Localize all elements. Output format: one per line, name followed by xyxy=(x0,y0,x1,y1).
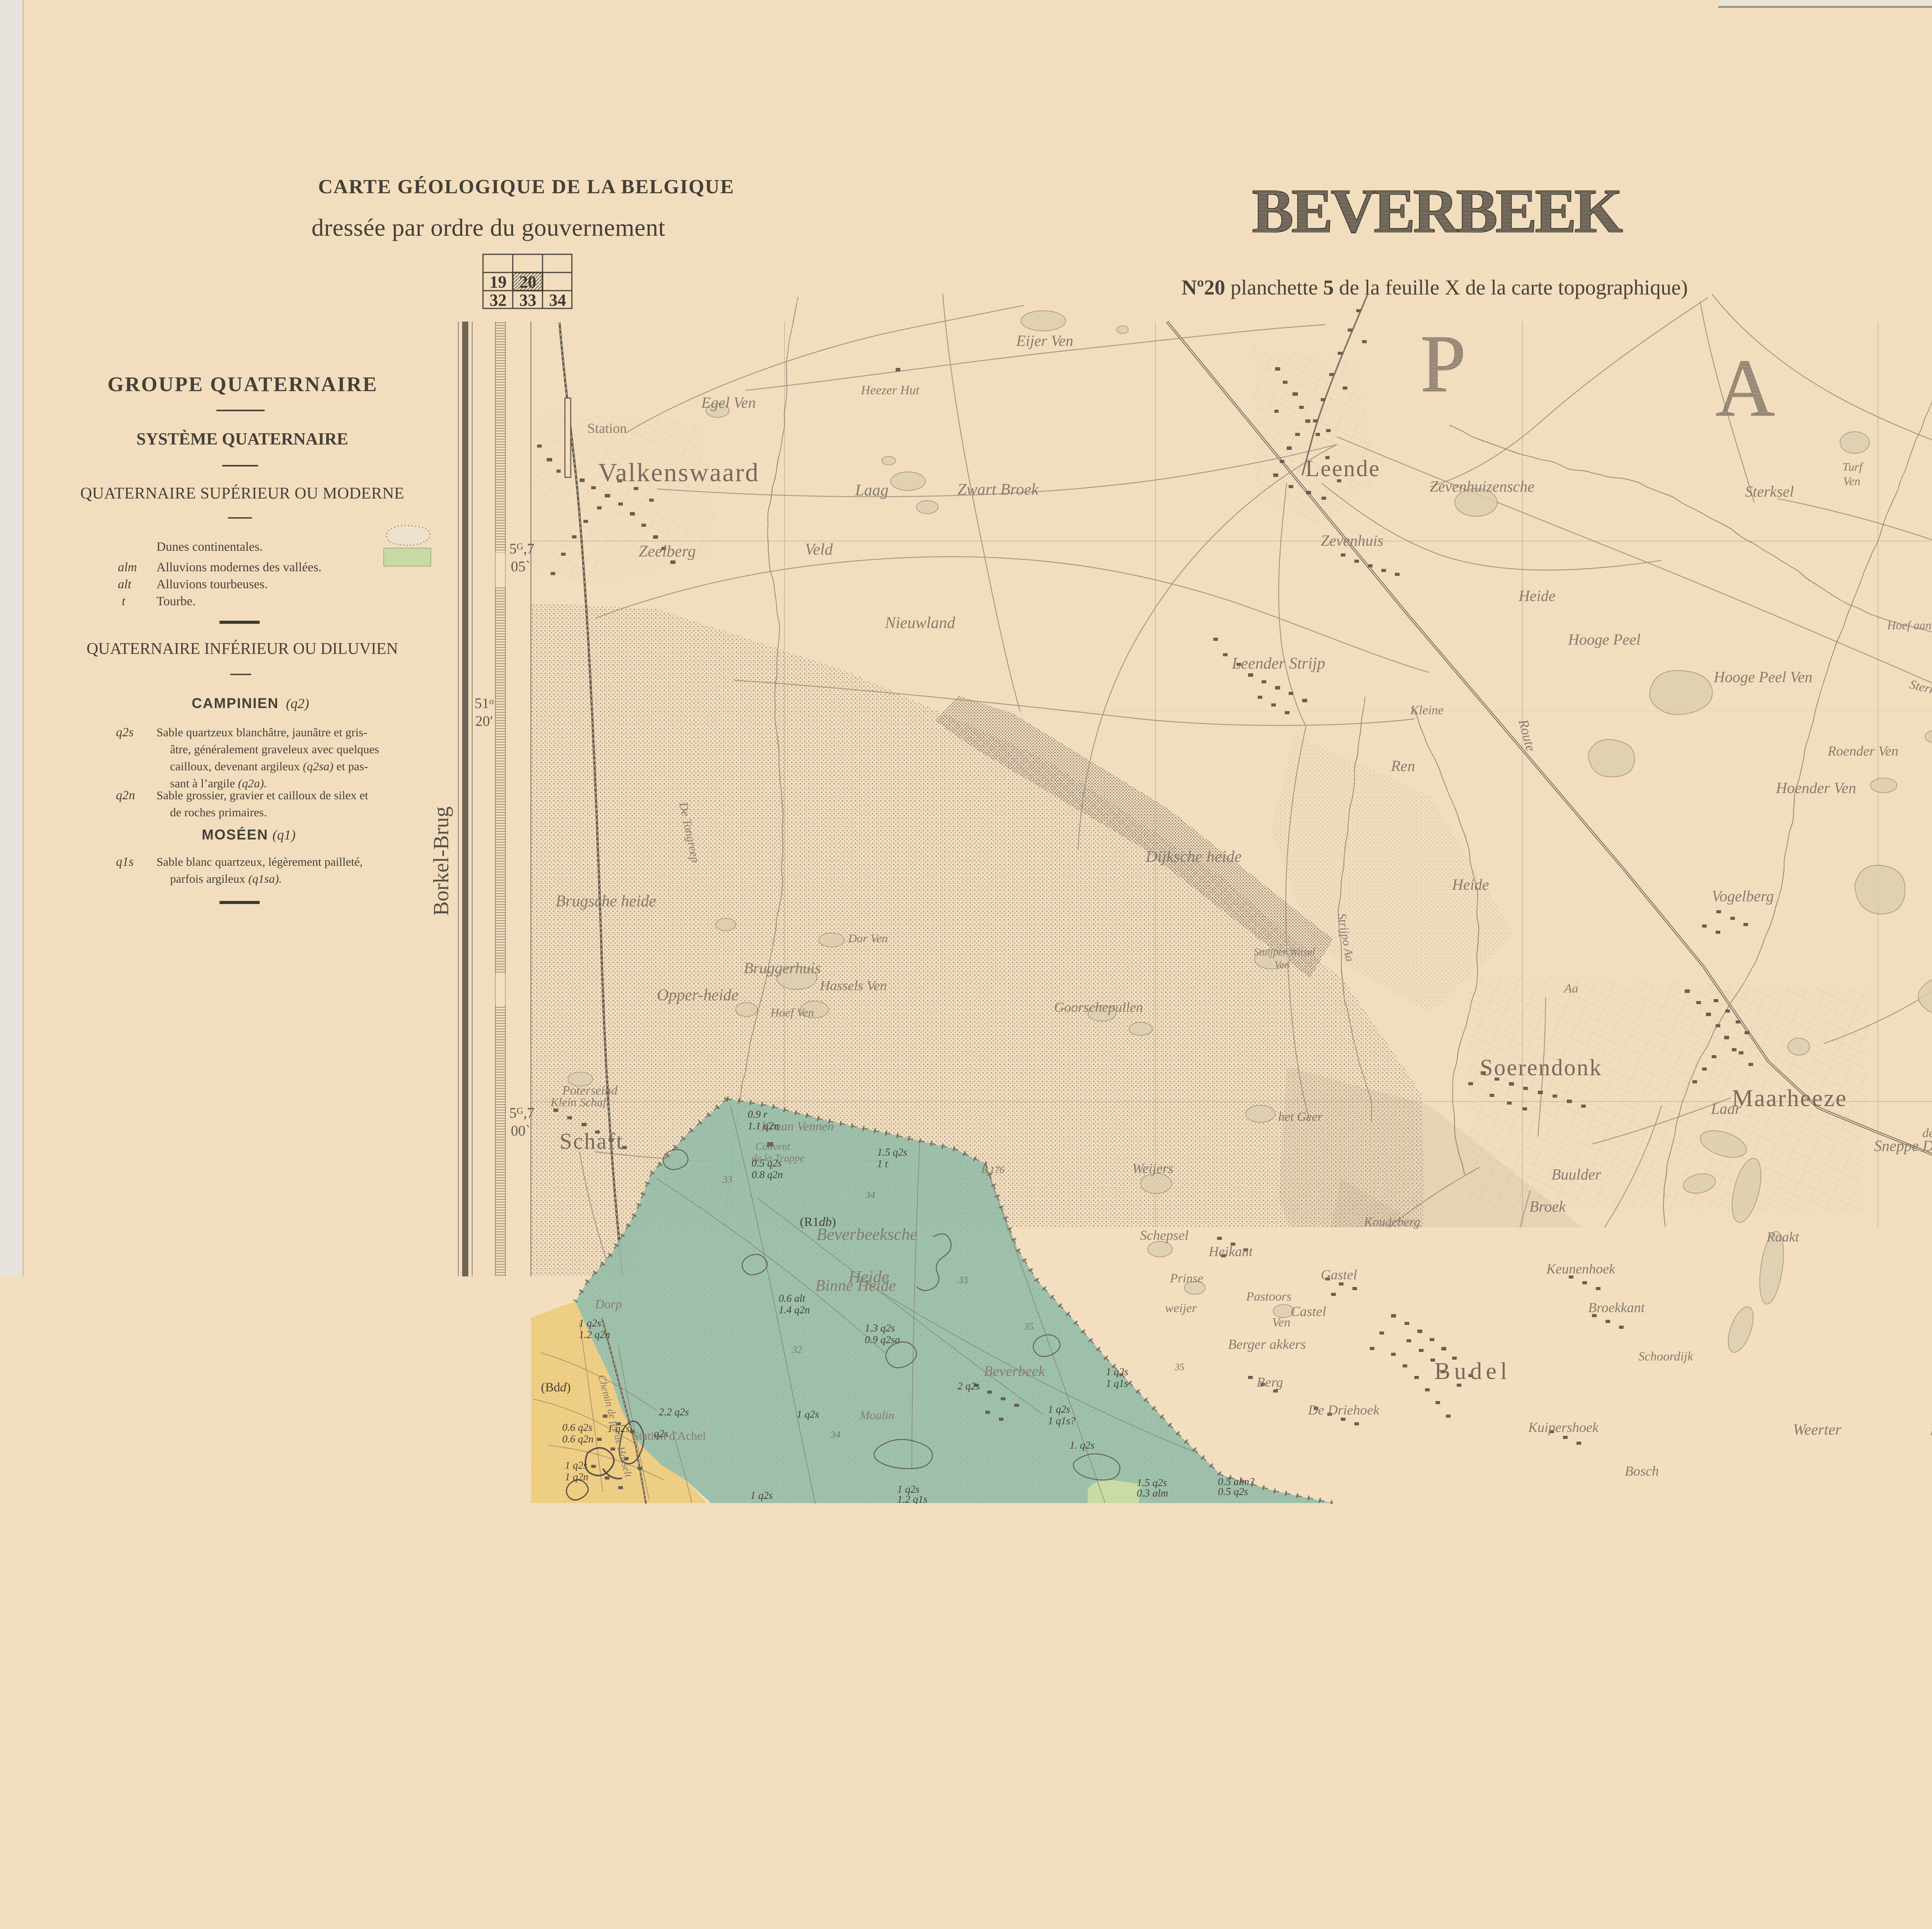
svg-text:Hoef aan de Pan: Hoef aan de Pan xyxy=(1887,618,1932,632)
svg-text:(R1db): (R1db) xyxy=(800,1215,836,1229)
svg-text:QUATERNAIRE INFÉRIEUR OU DILUV: QUATERNAIRE INFÉRIEUR OU DILUVIEN xyxy=(87,640,398,658)
svg-text:Laar: Laar xyxy=(1711,1100,1741,1117)
svg-text:0: 0 xyxy=(1157,1679,1163,1692)
svg-text:Heide: Heide xyxy=(1452,876,1489,893)
svg-text:32: 32 xyxy=(490,291,507,310)
svg-text:Schepsel: Schepsel xyxy=(1140,1228,1189,1243)
svg-text:Heide: Heide xyxy=(1518,587,1556,604)
svg-text:0.9 r: 0.9 r xyxy=(748,1108,768,1120)
svg-text:2.2 q2s: 2.2 q2s xyxy=(659,1406,689,1418)
svg-text:Pastoors: Pastoors xyxy=(1246,1290,1291,1304)
svg-text:Goorschepullen: Goorschepullen xyxy=(1054,999,1143,1015)
svg-text:Opper-heide: Opper-heide xyxy=(657,986,738,1004)
svg-text:Leende: Leende xyxy=(1305,456,1381,481)
svg-text:1000: 1000 xyxy=(1310,1679,1334,1692)
svg-text:1.1 q2n: 1.1 q2n xyxy=(748,1120,779,1132)
svg-text:sauf quand elles sont indiquée: sauf quand elles sont indiquées entre pa… xyxy=(381,1658,746,1674)
svg-text:âtre, généralement graveleux a: âtre, généralement graveleux avec quelqu… xyxy=(170,742,379,756)
svg-text:MOSÉEN: MOSÉEN xyxy=(202,827,268,843)
svg-text:q2s: q2s xyxy=(116,725,134,739)
svg-text:0.3 alm: 0.3 alm xyxy=(1137,1487,1168,1499)
svg-text:Hoef Ven: Hoef Ven xyxy=(770,1006,814,1019)
svg-text:Hassels Ven: Hassels Ven xyxy=(820,978,887,993)
svg-text:00`: 00` xyxy=(511,1123,531,1139)
svg-text:0.5 q2s: 0.5 q2s xyxy=(1218,1486,1248,1497)
svg-text:32: 32 xyxy=(792,1345,802,1355)
svg-text:Station d'Achel: Station d'Achel xyxy=(632,1429,706,1442)
svg-text:1 q2s: 1 q2s xyxy=(1106,1366,1128,1377)
svg-text:1 q2n: 1 q2n xyxy=(565,1471,588,1483)
svg-text:Hooge Peel Ven: Hooge Peel Ven xyxy=(1713,668,1812,686)
svg-text:Berger akkers: Berger akkers xyxy=(1228,1337,1306,1352)
svg-text:Prinse: Prinse xyxy=(1170,1272,1203,1285)
svg-text:15′: 15′ xyxy=(1796,1546,1814,1562)
svg-text:sant à l’argile (q2a).: sant à l’argile (q2a). xyxy=(170,776,267,790)
svg-text:1.2 q1s: 1.2 q1s xyxy=(897,1493,927,1505)
svg-text:St.6-6-98.: St.6-6-98. xyxy=(533,1545,571,1555)
svg-text:BEVERBEEK: BEVERBEEK xyxy=(1252,177,1622,246)
svg-text:0.6 alt: 0.6 alt xyxy=(779,1292,806,1304)
svg-text:Moulin: Moulin xyxy=(859,1408,895,1422)
svg-text:Sable blanc quartzeux, légèrem: Sable blanc quartzeux, légèrement paille… xyxy=(156,855,363,868)
svg-text:10′: 10′ xyxy=(1134,1546,1152,1562)
svg-text:de roches primaires.: de roches primaires. xyxy=(170,805,267,819)
svg-text:56G,9658”,22.: 56G,9658”,22. xyxy=(505,1512,519,1570)
svg-text:CARTE GÉOLOGIQUE DE LA BELGIQU: CARTE GÉOLOGIQUE DE LA BELGIQUE xyxy=(318,175,734,198)
svg-text:35: 35 xyxy=(1174,1362,1184,1372)
svg-text:1. q2s: 1. q2s xyxy=(1070,1439,1095,1451)
svg-text:Lat.: Lat. xyxy=(471,1551,487,1573)
svg-text:Nº20 planchette 5 de la feui: Nº20 planchette 5 de la feuille X de la … xyxy=(1182,276,1688,299)
svg-text:1.3 q2s: 1.3 q2s xyxy=(865,1322,895,1334)
svg-text:1.4 q2n: 1.4 q2n xyxy=(779,1304,810,1316)
svg-text:1 q2s: 1 q2s xyxy=(797,1408,819,1420)
svg-text:Weijers: Weijers xyxy=(1132,1161,1173,1176)
svg-text:Soerendonk: Soerendonk xyxy=(1480,1055,1602,1080)
svg-text:QUATERNAIRE SUPÉRIEUR OU MODER: QUATERNAIRE SUPÉRIEUR OU MODERNE xyxy=(80,484,405,502)
svg-text:Turf: Turf xyxy=(1842,460,1864,473)
svg-text:Convent: Convent xyxy=(755,1141,791,1152)
svg-text:Dor Ven: Dor Ven xyxy=(848,931,888,945)
svg-text:cailloux, devenant argileux (q: cailloux, devenant argileux (q2sa) et pa… xyxy=(170,759,368,773)
svg-text:Bosch: Bosch xyxy=(1625,1463,1659,1479)
svg-text:20′: 20′ xyxy=(475,713,493,729)
svg-text:Sterksel: Sterksel xyxy=(1745,483,1794,500)
svg-text:Tourbe.: Tourbe. xyxy=(156,594,196,608)
svg-text:Gastel: Gastel xyxy=(1321,1267,1357,1282)
svg-text:Aa: Aa xyxy=(1563,982,1578,996)
svg-text:35: 35 xyxy=(1024,1321,1034,1332)
svg-text:GROUPE QUATERNAIRE: GROUPE QUATERNAIRE xyxy=(107,373,378,396)
svg-text:de: de xyxy=(1922,1126,1932,1140)
svg-text:Dunes continentales.: Dunes continentales. xyxy=(156,540,263,554)
svg-text:alm: alm xyxy=(118,560,137,574)
svg-text:97240,m N.: 97240,m N. xyxy=(538,1510,603,1527)
svg-text:mètres .: mètres . xyxy=(1755,1679,1793,1692)
svg-text:Zevenhuizensche: Zevenhuizensche xyxy=(1430,478,1534,495)
svg-text:Castel: Castel xyxy=(1291,1304,1326,1319)
svg-text:De Driehoek: De Driehoek xyxy=(1308,1402,1380,1418)
svg-text:20: 20 xyxy=(519,272,536,291)
svg-text:Veld: Veld xyxy=(805,541,833,558)
svg-text:q2n: q2n xyxy=(116,788,135,802)
svg-text:34: 34 xyxy=(830,1430,840,1440)
svg-text:Hamont: Hamont xyxy=(901,1576,993,1604)
svg-text:r: r xyxy=(817,1687,823,1705)
svg-text:33: 33 xyxy=(958,1275,968,1285)
svg-text:Zevenhuis: Zevenhuis xyxy=(1321,532,1383,549)
svg-text:2 q2s: 2 q2s xyxy=(957,1380,980,1392)
svg-text:CAMPINIEN: CAMPINIEN xyxy=(192,695,279,711)
svg-text:Dorp: Dorp xyxy=(595,1297,622,1311)
svg-text:alt: alt xyxy=(118,577,132,591)
svg-text:Leender Strijp: Leender Strijp xyxy=(1231,655,1325,673)
svg-text:40 000: 40 000 xyxy=(1509,1631,1559,1647)
svg-text:34: 34 xyxy=(865,1190,875,1200)
svg-text:Alluvions tourbeuses.: Alluvions tourbeuses. xyxy=(156,577,268,591)
svg-text:1 q1s: 1 q1s xyxy=(1106,1377,1128,1389)
svg-text:Brugsche heide: Brugsche heide xyxy=(556,892,656,910)
svg-text:Ven: Ven xyxy=(1843,474,1861,488)
svg-text:Alluvions modernes des vallées: Alluvions modernes des vallées. xyxy=(156,560,321,574)
svg-text:Laag: Laag xyxy=(855,482,888,499)
svg-text:): ) xyxy=(1566,1620,1573,1644)
svg-text:Roender Ven: Roender Ven xyxy=(1827,743,1898,759)
svg-text:33: 33 xyxy=(519,291,536,310)
svg-text:Hooge Peel: Hooge Peel xyxy=(1568,631,1641,648)
svg-text:Beverbeek: Beverbeek xyxy=(984,1363,1045,1379)
svg-text:Broek: Broek xyxy=(1529,1198,1566,1215)
svg-text:1 q2s: 1 q2s xyxy=(579,1317,601,1329)
svg-text:0.8 q2n: 0.8 q2n xyxy=(752,1169,783,1180)
svg-text:25`: 25` xyxy=(825,1512,845,1528)
svg-text:Heide: Heide xyxy=(848,1267,889,1286)
svg-text:1 q2s: 1 q2s xyxy=(607,1423,630,1434)
svg-text:Valkenswaard: Valkenswaard xyxy=(598,458,759,487)
svg-text:Échelle métrique (: Échelle métrique ( xyxy=(1348,1620,1508,1644)
svg-text:Nieuwland: Nieuwland xyxy=(884,614,956,632)
svg-text:Kuipershoek: Kuipershoek xyxy=(1528,1420,1599,1435)
svg-text:SYSTÈME QUATERNAIRE: SYSTÈME QUATERNAIRE xyxy=(136,429,348,448)
svg-text:05`: 05` xyxy=(511,558,531,575)
svg-text:Berg: Berg xyxy=(1257,1374,1283,1390)
svg-text:1.5 q2s: 1.5 q2s xyxy=(877,1146,907,1158)
svg-text:Ven: Ven xyxy=(1274,959,1289,970)
svg-text:Sondage: Sondage xyxy=(506,1718,555,1734)
svg-text:dressée par ordre du gouvernem: dressée par ordre du gouvernement xyxy=(311,214,665,241)
svg-text:B.176: B.176 xyxy=(981,1165,1005,1175)
svg-text:500: 500 xyxy=(1083,1679,1102,1692)
svg-text:Sable quartzeux blanchâtre, ja: Sable quartzeux blanchâtre, jaunâtre et … xyxy=(156,725,367,739)
svg-text:Borkel-Brug: Borkel-Brug xyxy=(429,806,453,916)
svg-text:q2s: q2s xyxy=(654,1428,668,1439)
svg-text:1 q2s: 1 q2s xyxy=(1048,1403,1070,1415)
svg-text:1 q1s?: 1 q1s? xyxy=(1048,1415,1076,1427)
svg-text:het Geer: het Geer xyxy=(1278,1110,1323,1124)
svg-text:Koudeberg: Koudeberg xyxy=(1364,1215,1420,1229)
svg-text:Buulder: Buulder xyxy=(1551,1166,1601,1183)
svg-text:Veldhoven: Veldhoven xyxy=(1833,1572,1932,1600)
svg-text:parfois argileux (q1sa).: parfois argileux (q1sa). xyxy=(170,872,282,885)
svg-text:Poterseind: Poterseind xyxy=(562,1084,617,1098)
svg-text:Les notations de la légende ne: Les notations de la légende ne sont rens… xyxy=(395,1619,736,1635)
svg-text:19: 19 xyxy=(490,272,507,291)
svg-text:1 q2s: 1 q2s xyxy=(565,1459,587,1471)
svg-text:Station: Station xyxy=(587,421,627,436)
svg-text:2000: 2000 xyxy=(1446,1679,1469,1692)
svg-text:Zeelberg: Zeelberg xyxy=(639,543,696,560)
svg-text:t: t xyxy=(122,594,126,608)
svg-text:(Bdd): (Bdd) xyxy=(541,1381,571,1394)
svg-text:0.5 q2s: 0.5 q2s xyxy=(752,1157,782,1169)
svg-text:Ren: Ren xyxy=(1391,757,1415,775)
svg-text:Dijksche heide: Dijksche heide xyxy=(1145,848,1242,866)
svg-text:Hoender Ven: Hoender Ven xyxy=(1776,779,1856,797)
svg-text:Bruggerhuis: Bruggerhuis xyxy=(744,959,821,977)
svg-text:Long.E.: Long.E. xyxy=(465,1530,510,1545)
svg-text:Vogelberg: Vogelberg xyxy=(1712,887,1774,905)
svg-text:0.9 q2sa: 0.9 q2sa xyxy=(865,1334,900,1345)
svg-text:30`: 30` xyxy=(1204,1512,1223,1528)
svg-text:Ven: Ven xyxy=(1272,1316,1291,1330)
svg-text:1 t: 1 t xyxy=(877,1158,888,1170)
svg-text:qu'aux points de sondages et a: qu'aux points de sondages et aux points … xyxy=(386,1639,756,1655)
svg-text:Broekkant: Broekkant xyxy=(1588,1300,1645,1315)
svg-text:Heikant: Heikant xyxy=(1208,1244,1253,1259)
svg-text:Stuijper Witsel: Stuijper Witsel xyxy=(1254,946,1315,958)
svg-text:A: A xyxy=(1716,342,1775,433)
svg-text:Sable remanié: Sable remanié xyxy=(777,1718,858,1734)
svg-text:3000: 3000 xyxy=(1581,1679,1605,1692)
svg-text:35`: 35` xyxy=(1523,1512,1543,1528)
svg-text:33: 33 xyxy=(722,1175,732,1185)
svg-text:q1s: q1s xyxy=(116,855,134,869)
svg-text:Zwart Broek: Zwart Broek xyxy=(957,481,1039,499)
svg-text:Heide: Heide xyxy=(1930,1421,1932,1438)
svg-text:Schoordijk: Schoordijk xyxy=(1638,1350,1694,1364)
svg-text:4000: 4000 xyxy=(1716,1679,1740,1692)
svg-text:(q1): (q1) xyxy=(272,827,296,843)
svg-text:0.6 q2n: 0.6 q2n xyxy=(562,1433,594,1445)
svg-text:weijer: weijer xyxy=(1165,1301,1197,1315)
svg-text:34: 34 xyxy=(549,291,566,310)
svg-text:Weerter: Weerter xyxy=(1793,1421,1842,1438)
svg-text:0.6 q2s: 0.6 q2s xyxy=(562,1422,592,1433)
svg-text:Heezer Hut: Heezer Hut xyxy=(861,383,920,397)
svg-text:Kleine: Kleine xyxy=(1410,703,1444,717)
svg-text:Maarheeze: Maarheeze xyxy=(1732,1085,1847,1112)
svg-text:Sable grossier, gravier et cai: Sable grossier, gravier et cailloux de s… xyxy=(156,788,368,802)
svg-text:Raakt: Raakt xyxy=(1766,1229,1799,1245)
svg-text:Egel Ven: Egel Ven xyxy=(701,394,756,411)
svg-text:1: 1 xyxy=(1530,1612,1537,1629)
svg-text:Keunenhoek: Keunenhoek xyxy=(1546,1261,1616,1277)
svg-text:1 q2s: 1 q2s xyxy=(750,1490,773,1501)
svg-text:1.2 q2n: 1.2 q2n xyxy=(579,1329,610,1340)
svg-text:(q2): (q2) xyxy=(286,696,309,711)
svg-text:Schaft: Schaft xyxy=(560,1129,624,1154)
svg-text:Eijer Ven: Eijer Ven xyxy=(1016,332,1073,349)
svg-text:P: P xyxy=(1420,318,1466,409)
svg-text:1000: 1000 xyxy=(1013,1679,1037,1692)
svg-text:Budel: Budel xyxy=(1434,1358,1511,1384)
svg-text:1.5 q2s: 1.5 q2s xyxy=(1137,1477,1167,1488)
svg-text:40`: 40` xyxy=(1879,1512,1899,1528)
svg-text:76.000,mE.: 76.000,mE. xyxy=(512,1438,525,1488)
